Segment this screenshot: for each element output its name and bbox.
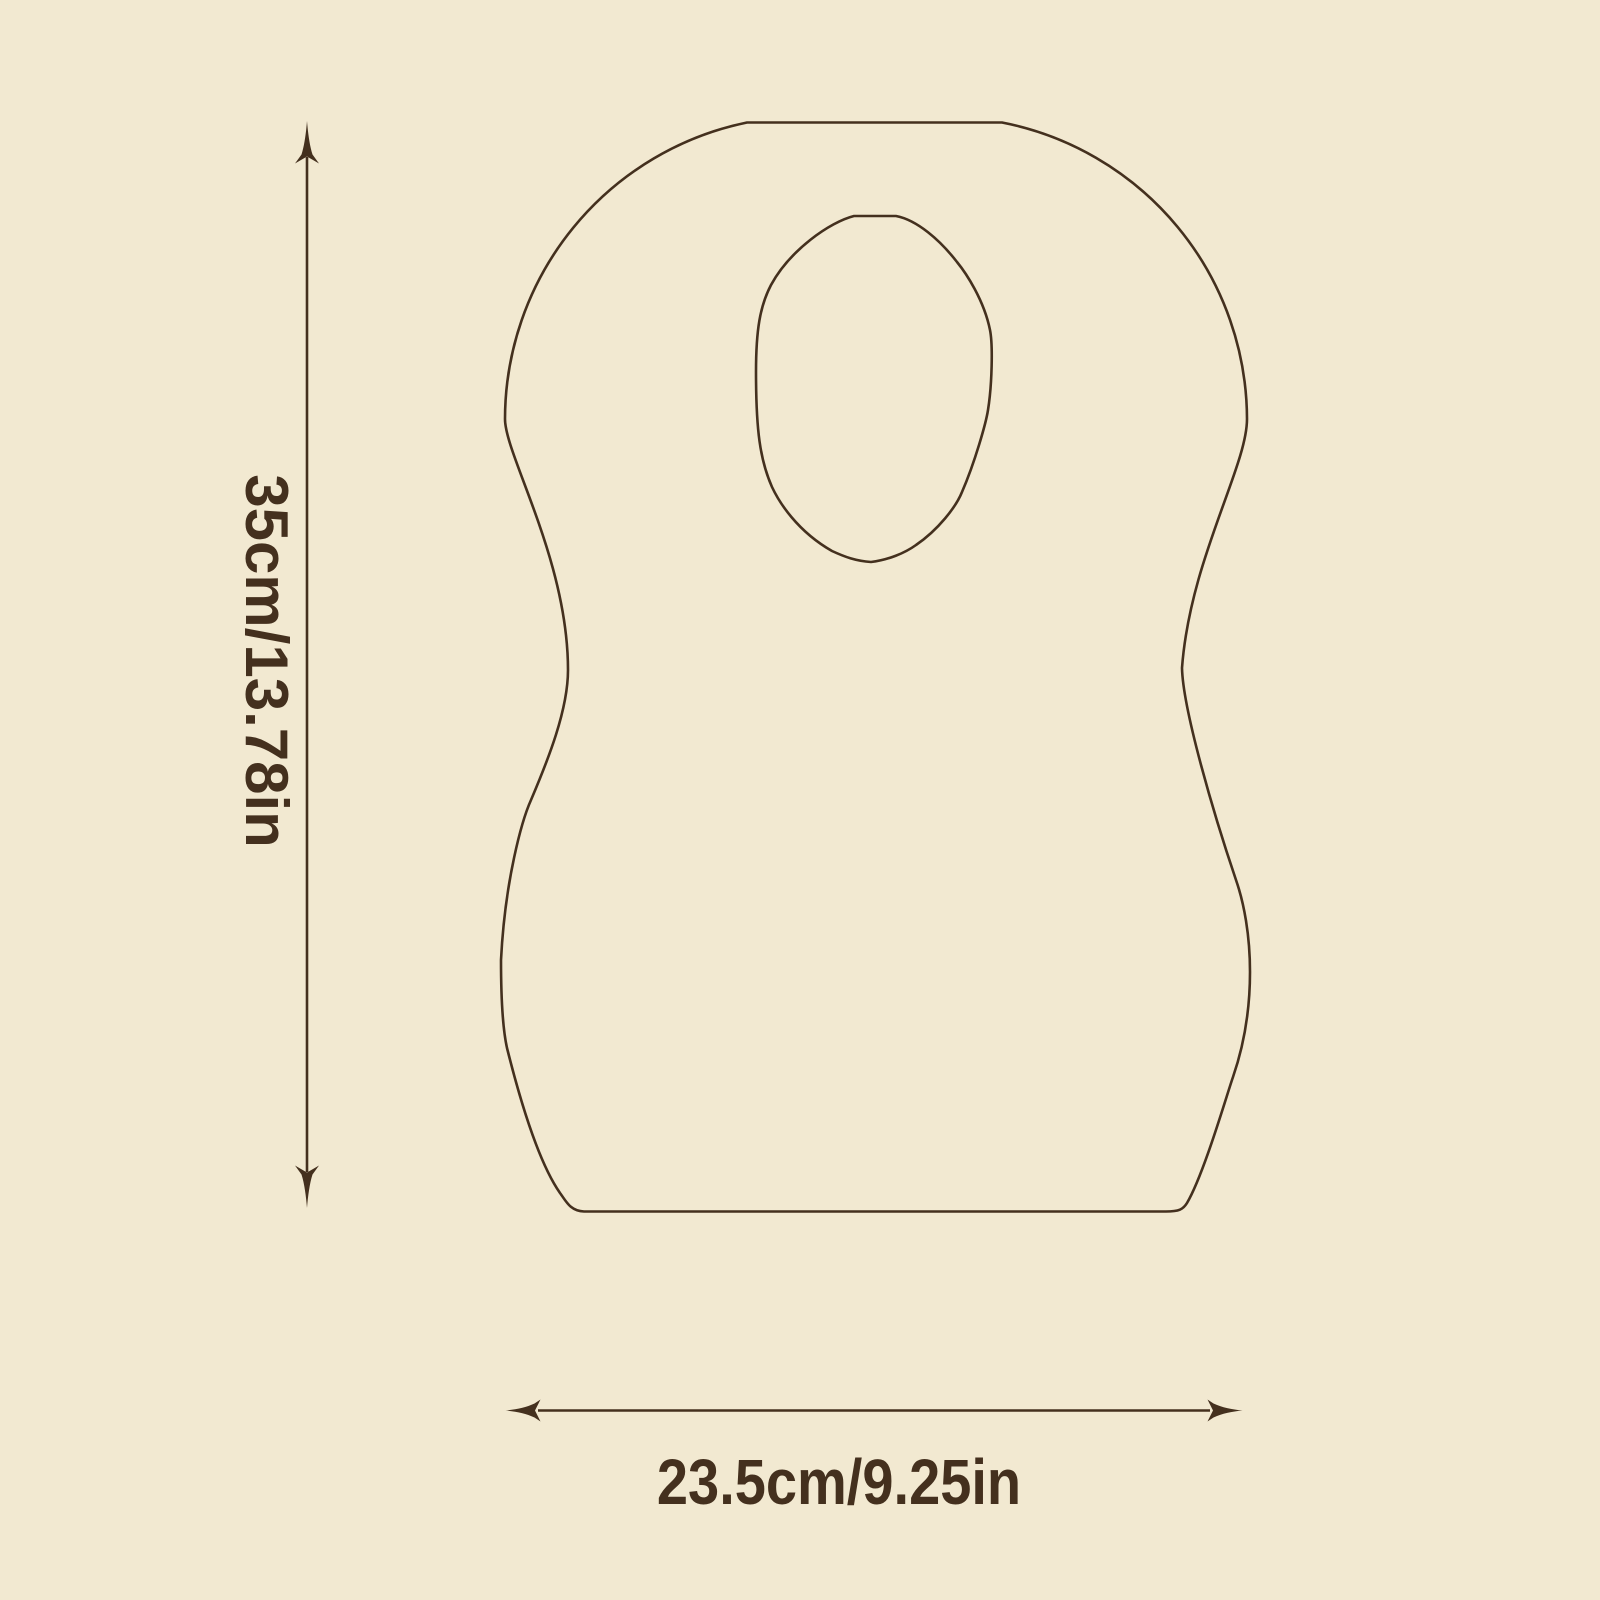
svg-text:23.5cm/9.25in: 23.5cm/9.25in (657, 1447, 1021, 1518)
svg-text:35cm/13.78in: 35cm/13.78in (233, 474, 300, 848)
